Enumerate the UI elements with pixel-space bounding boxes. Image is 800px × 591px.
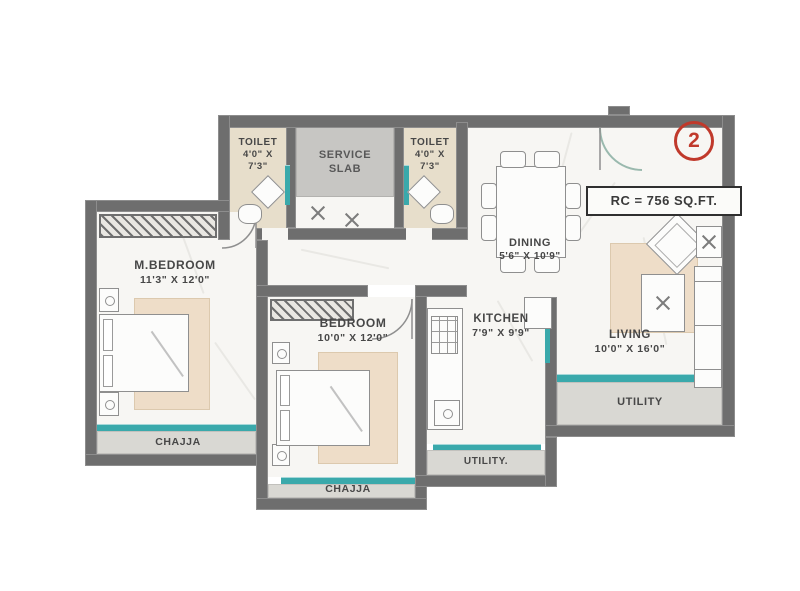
window-living-utility	[557, 374, 700, 382]
room-name: TOILET	[226, 136, 290, 149]
room-name: BEDROOM	[288, 316, 418, 332]
wall-right-outer	[722, 115, 735, 437]
wall-chajja-bedroom-bottom	[256, 498, 427, 510]
room-label-dining: DINING 5'6" X 10'9"	[475, 236, 585, 263]
room-dim: 11'3" X 12'0"	[105, 274, 245, 288]
room-label-service-slab: SERVICE SLAB	[296, 148, 394, 177]
pillow-icon	[280, 410, 290, 441]
room-dim: 4'0" X	[226, 149, 290, 161]
unit-number-badge: 2	[674, 121, 714, 161]
wc-left-icon	[238, 204, 262, 224]
x-mark-icon	[701, 234, 717, 250]
dining-chair-icon	[481, 183, 497, 209]
sofa-cushion-line	[695, 281, 721, 282]
wall-master-bedroom-top	[85, 200, 230, 212]
wall-utility-kitchen-right	[545, 437, 557, 487]
coffee-table-icon	[641, 274, 685, 332]
nightstand-icon	[99, 288, 119, 312]
room-dim: 4'0" X	[398, 149, 462, 161]
bedroom-bed-icon	[276, 370, 370, 446]
room-name: SLAB	[296, 162, 394, 176]
room-label-kitchen: KITCHEN 7'9" X 9'9"	[453, 312, 549, 341]
nightstand-icon	[99, 392, 119, 416]
room-name: KITCHEN	[453, 312, 549, 327]
pillow-icon	[103, 319, 113, 351]
wall-kitchen-top-stub	[415, 285, 467, 297]
door-gap-toilet-left	[262, 228, 288, 240]
room-label-toilet-left: TOILET 4'0" X 7'3"	[226, 136, 290, 174]
x-mark-icon	[655, 295, 671, 311]
floor-plan: TOILET 4'0" X 7'3" SERVICE SLAB TOILET 4…	[0, 0, 800, 591]
kitchen-stove-icon	[434, 400, 460, 426]
service-slab-x-mark-icon	[310, 205, 326, 221]
room-name: UTILITY	[595, 395, 685, 409]
nightstand-icon	[272, 342, 290, 364]
sofa-cushion-line	[695, 325, 721, 326]
dining-chair-icon	[565, 183, 581, 209]
room-name: TOILET	[398, 136, 462, 149]
wall-utility-kitchen-bottom	[415, 475, 557, 487]
door-arc-main-entrance	[600, 128, 642, 170]
pillow-icon	[280, 375, 290, 406]
pillow-icon	[103, 355, 113, 387]
wall-left-outer	[85, 200, 97, 466]
room-dim: 10'0" X 12'0"	[288, 332, 418, 346]
room-label-chajja-bedroom: CHAJJA	[308, 483, 388, 497]
dining-chair-icon	[534, 151, 560, 168]
room-label-bedroom: BEDROOM 10'0" X 12'0"	[288, 316, 418, 345]
room-dim: 7'3"	[398, 161, 462, 173]
area-callout: RC = 756 SQ.FT.	[586, 186, 742, 216]
door-gap-toilet-right	[406, 228, 432, 240]
room-name: UTILITY.	[452, 455, 520, 468]
room-name: CHAJJA	[308, 483, 388, 497]
room-label-living: LIVING 10'0" X 16'0"	[578, 328, 682, 357]
wardrobe-master-icon	[99, 214, 217, 238]
dining-chair-icon	[500, 151, 526, 168]
wall-top-tick	[608, 106, 630, 115]
room-name: LIVING	[578, 328, 682, 343]
wall-bedroom-top	[256, 285, 368, 297]
window-master-chajja	[97, 424, 256, 431]
wc-right-icon	[430, 204, 454, 224]
room-label-utility-kitchen: UTILITY.	[452, 455, 520, 468]
room-label-master-bedroom: M.BEDROOM 11'3" X 12'0"	[105, 258, 245, 287]
room-dim: 5'6" X 10'9"	[475, 250, 585, 263]
room-dim: 10'0" X 16'0"	[578, 343, 682, 357]
room-label-chajja-master: CHAJJA	[138, 436, 218, 450]
sofa-icon	[694, 266, 722, 388]
room-dim: 7'9" X 9'9"	[453, 327, 549, 341]
side-table-icon	[696, 226, 722, 258]
room-name: DINING	[475, 236, 585, 250]
blanket-fold	[330, 386, 363, 432]
nightstand-icon	[272, 444, 290, 466]
room-name: M.BEDROOM	[105, 258, 245, 274]
room-label-utility-living: UTILITY	[595, 395, 685, 409]
wall-master-bedroom-right	[256, 240, 268, 510]
room-name: SERVICE	[296, 148, 394, 162]
wall-chajja-master-bottom	[85, 454, 268, 466]
room-label-toilet-right: TOILET 4'0" X 7'3"	[398, 136, 462, 174]
wall-utility-living-bottom	[545, 425, 735, 437]
room-dim: 7'3"	[226, 161, 290, 173]
room-name: CHAJJA	[138, 436, 218, 450]
master-bed-icon	[99, 314, 189, 392]
service-slab-x-mark-icon	[344, 212, 360, 228]
blanket-fold	[151, 331, 184, 377]
sofa-cushion-line	[695, 369, 721, 370]
